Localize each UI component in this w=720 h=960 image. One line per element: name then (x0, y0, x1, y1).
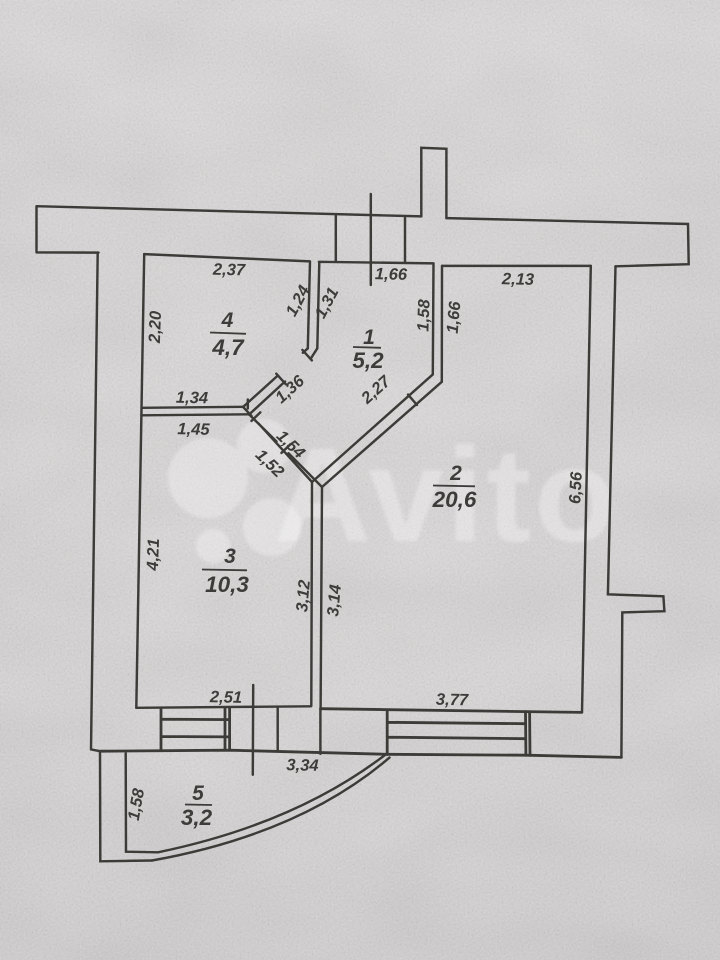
svg-text:6,56: 6,56 (566, 471, 586, 505)
svg-text:2: 2 (449, 462, 462, 485)
svg-text:10,3: 10,3 (205, 572, 249, 597)
svg-text:3,77: 3,77 (436, 691, 469, 710)
svg-text:3,14: 3,14 (324, 584, 345, 618)
svg-text:2,51: 2,51 (209, 688, 243, 707)
svg-text:4,7: 4,7 (211, 335, 245, 360)
svg-text:3,2: 3,2 (181, 805, 213, 830)
svg-text:1: 1 (363, 326, 375, 349)
svg-text:2,13: 2,13 (501, 270, 535, 289)
svg-text:3,34: 3,34 (286, 756, 319, 775)
svg-text:3,12: 3,12 (293, 579, 314, 613)
svg-text:20,6: 20,6 (432, 487, 477, 512)
svg-text:5: 5 (192, 782, 204, 805)
svg-text:3: 3 (224, 545, 236, 568)
svg-text:4: 4 (221, 309, 234, 332)
svg-text:1,58: 1,58 (414, 298, 433, 332)
svg-text:2,20: 2,20 (146, 310, 165, 345)
svg-text:1,45: 1,45 (177, 420, 210, 439)
svg-text:5,2: 5,2 (352, 348, 384, 373)
svg-text:2,37: 2,37 (212, 261, 246, 280)
svg-text:1,66: 1,66 (444, 300, 465, 334)
svg-text:1,66: 1,66 (375, 265, 408, 284)
svg-text:4,21: 4,21 (144, 538, 163, 572)
svg-text:1,34: 1,34 (176, 389, 209, 408)
